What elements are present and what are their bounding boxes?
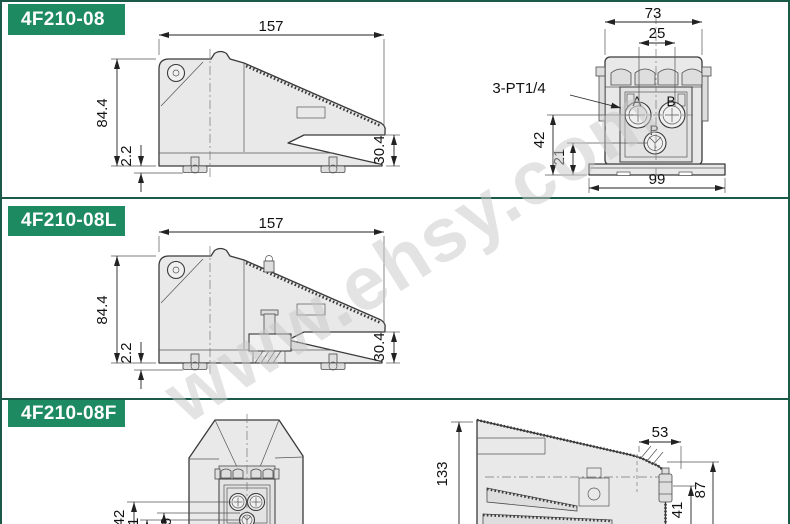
dim-base-width: 99 [649, 171, 666, 188]
section-divider [2, 398, 790, 400]
dim-height: 84.4 [94, 295, 111, 324]
4f210-08f-front-view-drawing: 42 21 6 [107, 414, 377, 524]
dim-offset: 6 [158, 518, 175, 524]
dim-top-width: 53 [652, 424, 669, 441]
dim-pedal-height: 30.4 [371, 135, 388, 164]
port-p-label: P [649, 123, 658, 138]
dim-pedal-height: 30.4 [371, 332, 388, 361]
dim-top-width: 73 [645, 5, 662, 22]
4f210-08-front-view-drawing: A B P 73 25 3-PT1/4 42 21 [507, 7, 787, 197]
dim-width: 157 [258, 18, 283, 35]
guard-side [477, 420, 672, 524]
thread-note: 3-PT1/4 [492, 80, 545, 97]
dim-height: 84.4 [94, 98, 111, 127]
catalog-page: 4F210-08 4F210-08L 4F210-08F www.ehsy.co… [0, 0, 790, 524]
dim-inner-height: 41 [669, 502, 686, 519]
dim-p-port-height: 21 [125, 518, 142, 524]
4f210-08f-side-view-drawing: 133 53 87 41 [427, 414, 727, 524]
dim-guard-height: 87 [692, 482, 709, 499]
4f210-08l-side-view-drawing: 157 84.4 2.2 30.4 [97, 213, 407, 396]
guard-front [189, 414, 303, 524]
dim-width: 157 [258, 215, 283, 232]
dim-p-port-height: 21 [551, 149, 568, 166]
dim-port-pitch: 25 [649, 25, 666, 42]
valve-body-side [159, 49, 385, 178]
4f210-08-side-view-drawing: 157 84.4 2.2 30.4 [97, 16, 407, 197]
port-b-label: B [666, 94, 675, 109]
port-b [248, 494, 265, 511]
section-title: 4F210-08 [21, 9, 105, 31]
port-a [230, 494, 247, 511]
section-divider [2, 197, 790, 199]
dim-port-height: 42 [531, 132, 548, 149]
section-title: 4F210-08F [21, 403, 117, 425]
dim-base-gap: 2.2 [118, 146, 135, 167]
dim-base-gap: 2.2 [118, 343, 135, 364]
valve-body-side [159, 246, 385, 375]
dim-height: 133 [434, 461, 451, 486]
port-a-label: A [632, 94, 641, 109]
